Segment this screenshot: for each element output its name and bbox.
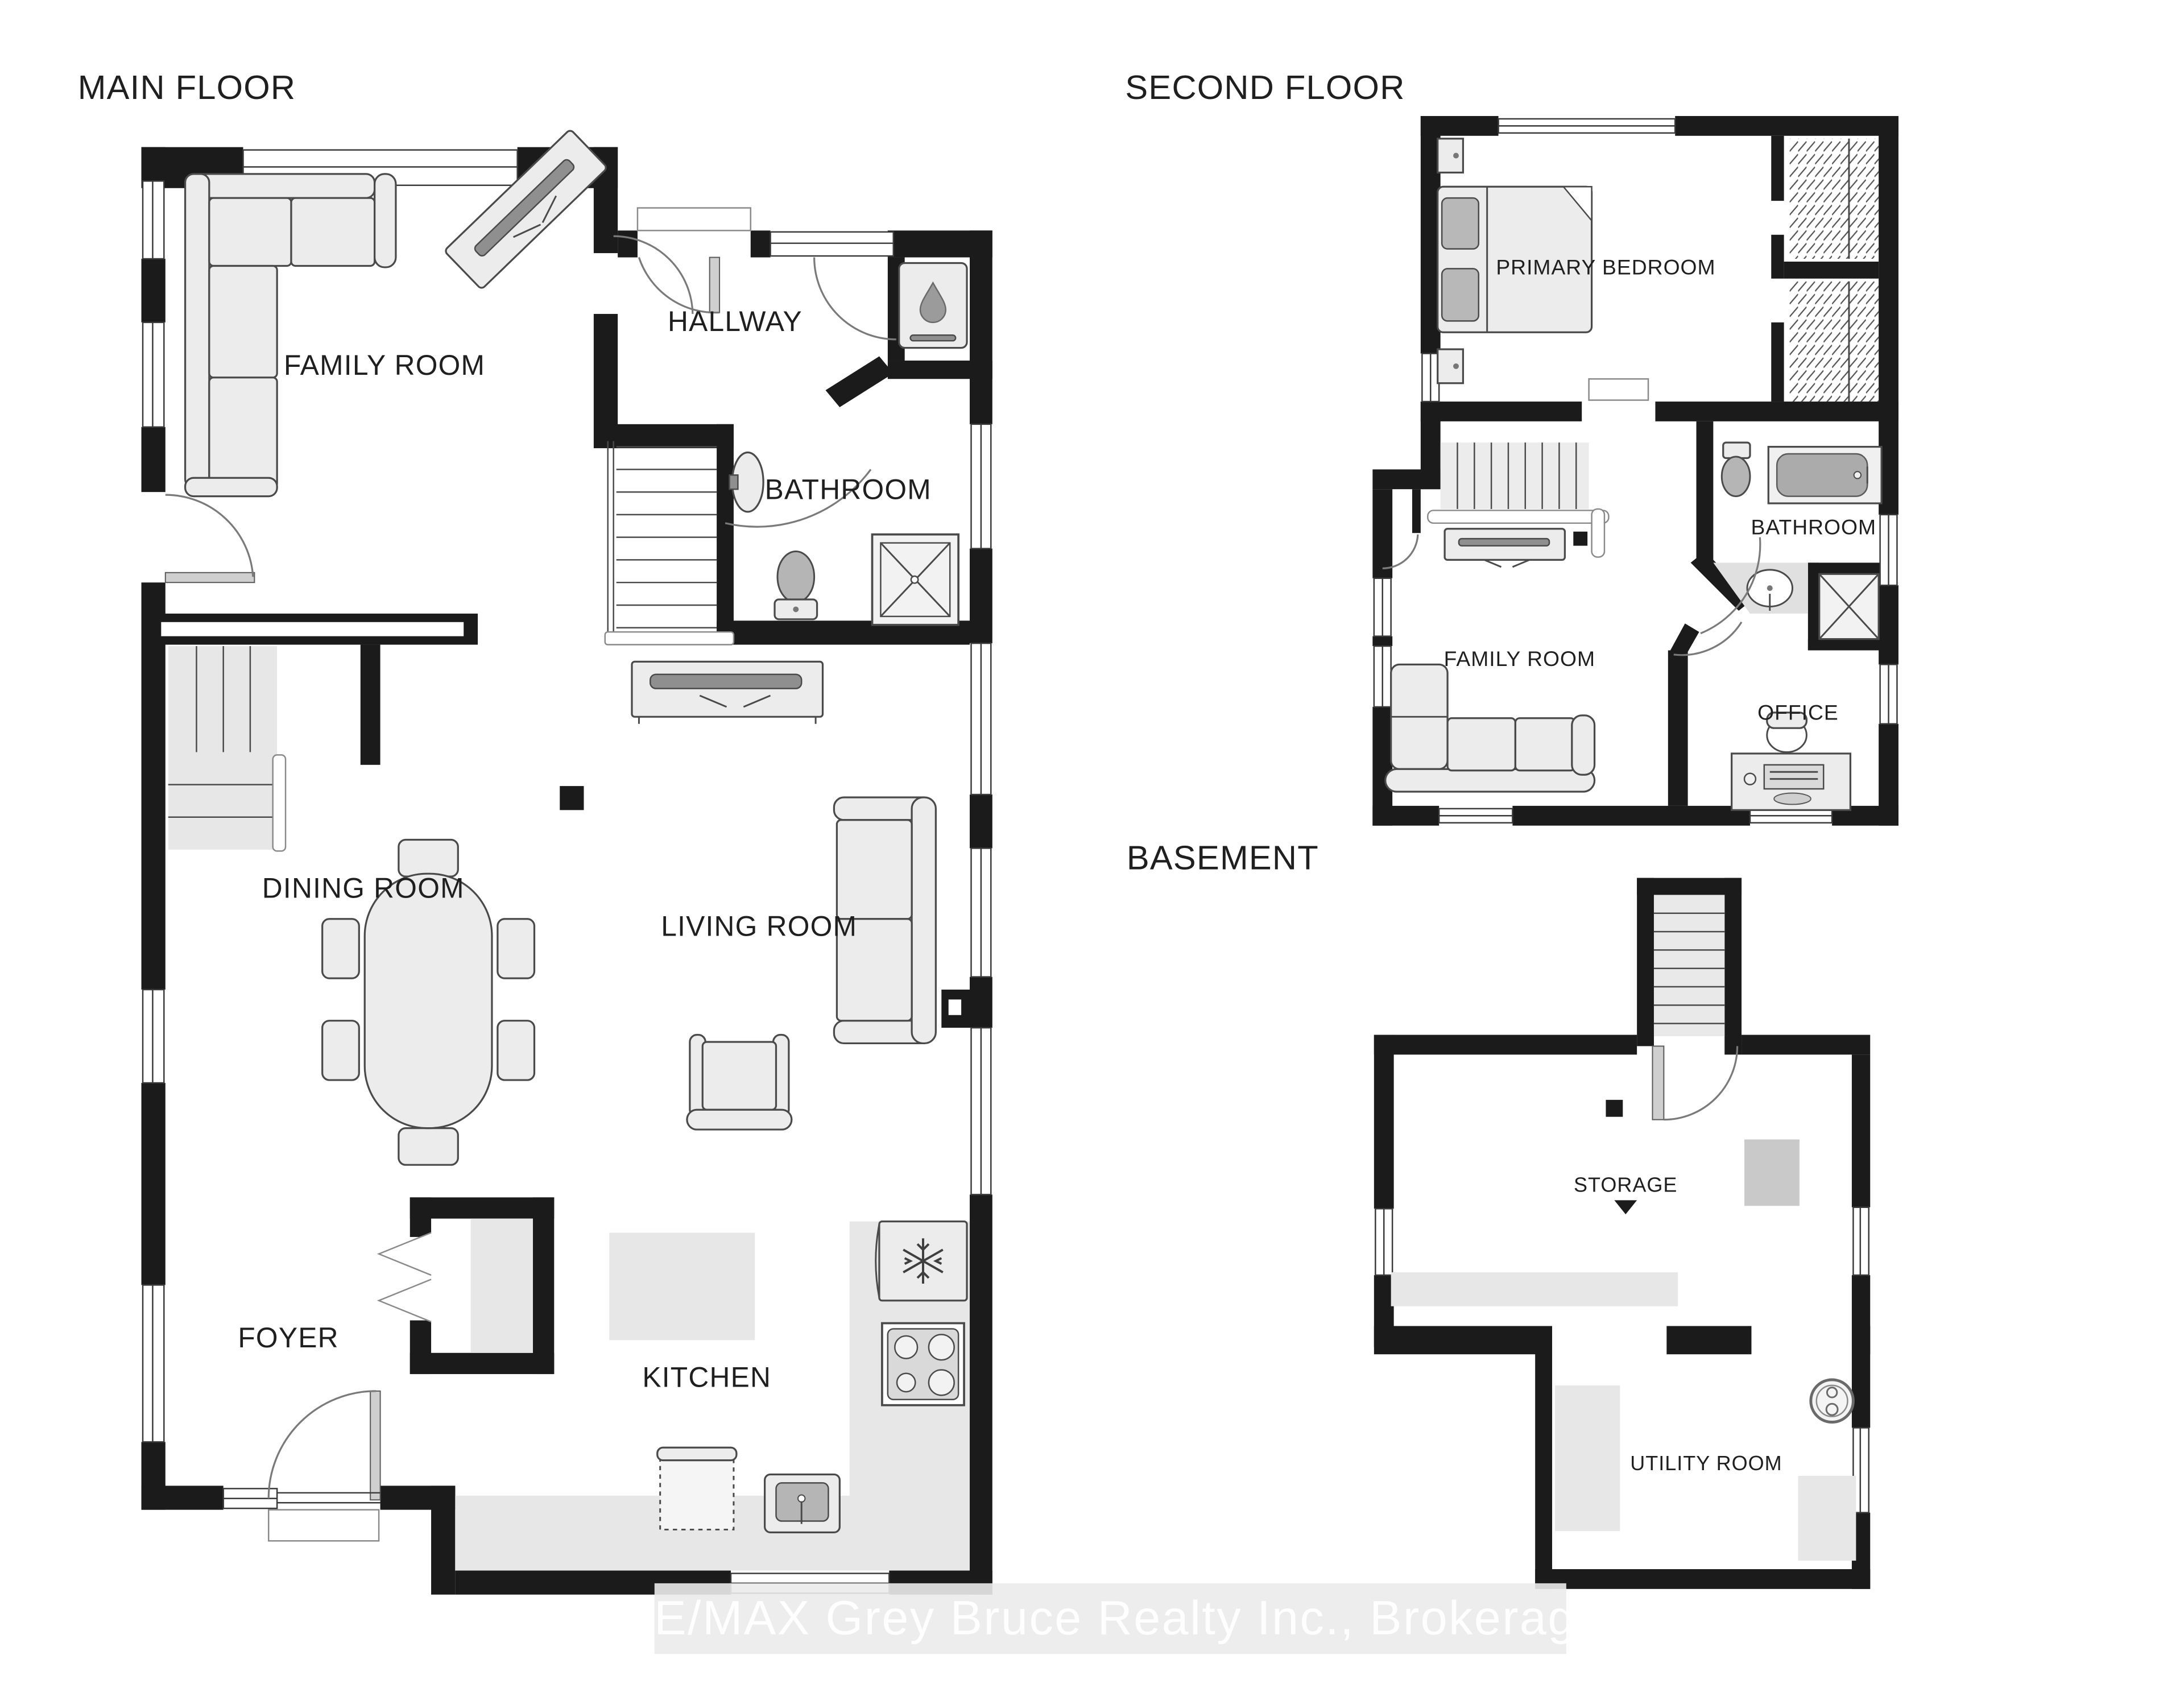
dining-table (365, 874, 492, 1128)
front-door-leaf (370, 1391, 380, 1500)
label-family-room-second: FAMILY ROOM (1444, 647, 1595, 671)
label-kitchen: KITCHEN (642, 1361, 771, 1393)
main-floor-title: MAIN FLOOR (78, 68, 296, 106)
closet-hatch-upper (1790, 139, 1879, 259)
utility-closet (899, 263, 967, 347)
tv-icon (650, 675, 801, 689)
basement-door-leaf (1652, 1046, 1664, 1119)
living-room-armchair (687, 1035, 792, 1130)
kitchen-cart (657, 1447, 737, 1529)
kitchen-island (609, 1232, 755, 1340)
office-desk-set (1732, 713, 1851, 810)
shower-icon (872, 535, 959, 625)
basement-title: BASEMENT (1127, 839, 1319, 877)
bedroom-door-step (1589, 379, 1648, 400)
entry-door-leaf (710, 258, 719, 313)
pillow (1442, 198, 1479, 249)
bifold-door-upper (379, 1232, 431, 1275)
toilet-icon (1722, 442, 1750, 496)
patio-door-leaf (166, 573, 255, 582)
second-family-sectional (1385, 664, 1595, 792)
nightstand (1438, 139, 1463, 173)
basement-stairs (1652, 895, 1737, 1119)
foyer-closet-shelf (471, 1219, 533, 1353)
watermark: RE/MAX Grey Bruce Realty Inc., Brokerage (618, 1583, 1604, 1654)
storage-workbench (1391, 1272, 1678, 1306)
nightstand (1438, 349, 1463, 383)
main-floor-plan: MAIN FLOOR (78, 68, 992, 1595)
utility-equipment (1798, 1476, 1856, 1561)
utility-freezer (1555, 1385, 1620, 1531)
label-storage: STORAGE (1574, 1173, 1677, 1196)
second-floor-plan: SECOND FLOOR (1125, 68, 1898, 826)
label-dining-room: DINING ROOM (262, 872, 465, 904)
basement-walls (1374, 878, 1870, 1589)
kitchen-sink-icon (765, 1475, 840, 1533)
bathtub-icon (1768, 447, 1881, 503)
second-bathroom-fixtures (1701, 442, 1881, 639)
living-tv-console (632, 661, 823, 723)
label-living-room: LIVING ROOM (661, 911, 857, 942)
down-arrow-icon (1614, 1200, 1637, 1214)
toilet-icon (775, 552, 817, 619)
second-floor-title: SECOND FLOOR (1125, 68, 1405, 106)
label-primary-bedroom: PRIMARY BEDROOM (1496, 255, 1715, 279)
pillow (1442, 268, 1479, 321)
closet-hatch-lower (1790, 282, 1879, 402)
label-family-room: FAMILY ROOM (284, 349, 485, 381)
fridge-icon (876, 1222, 967, 1301)
front-step (268, 1510, 379, 1541)
watermark-text: RE/MAX Grey Bruce Realty Inc., Brokerage (618, 1591, 1604, 1644)
storage-pad (1744, 1139, 1800, 1206)
stair-railing (273, 755, 286, 851)
stair-railing (1428, 510, 1608, 523)
basement-windows (1375, 1207, 1868, 1513)
stove-icon (882, 1323, 964, 1405)
label-office: OFFICE (1757, 700, 1839, 724)
label-bathroom-main: BATHROOM (765, 474, 932, 506)
basement-plan: BASEMENT (1127, 839, 1870, 1589)
family-room-sectional (185, 174, 396, 497)
second-tv-console (1445, 529, 1565, 567)
tv-icon (1459, 539, 1549, 545)
shower-icon (1819, 574, 1879, 639)
entry-step (638, 208, 751, 231)
label-utility-room: UTILITY ROOM (1630, 1451, 1782, 1475)
label-hallway: HALLWAY (668, 305, 803, 337)
main-basement-stairs (168, 646, 286, 851)
bifold-door-lower (379, 1280, 431, 1322)
keyboard-icon (1764, 765, 1823, 789)
floor-plan-canvas: MAIN FLOOR (0, 0, 2184, 1688)
main-stairs-up (605, 441, 734, 645)
label-foyer: FOYER (238, 1322, 338, 1354)
label-bathroom-second: BATHROOM (1751, 515, 1877, 539)
water-heater-icon (1811, 1380, 1854, 1422)
